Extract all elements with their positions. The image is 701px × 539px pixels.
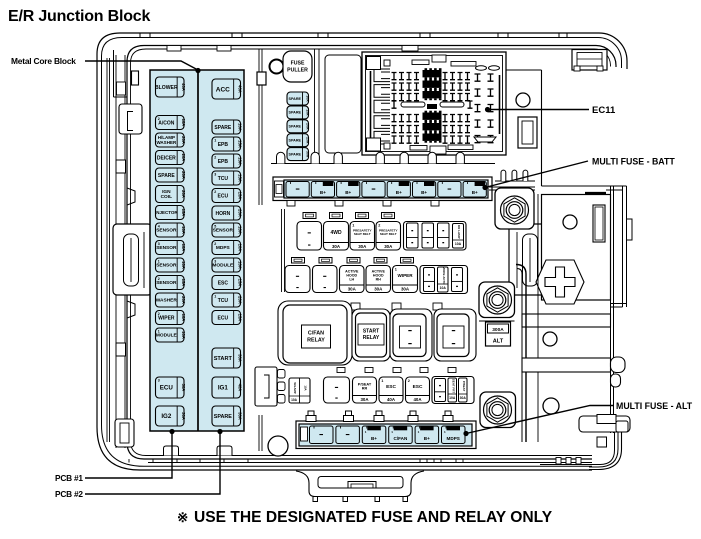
svg-text:1: 1 bbox=[352, 224, 354, 228]
svg-text:30A: 30A bbox=[358, 244, 367, 249]
svg-text:4: 4 bbox=[158, 224, 160, 228]
svg-text:1: 1 bbox=[158, 329, 160, 333]
svg-text:40A: 40A bbox=[181, 83, 186, 91]
svg-text:20A: 20A bbox=[306, 123, 310, 130]
svg-text:Metal Core Block: Metal Core Block bbox=[11, 56, 76, 66]
svg-text:SPARE: SPARE bbox=[289, 125, 302, 129]
svg-text:15A: 15A bbox=[306, 109, 310, 116]
svg-text:1: 1 bbox=[214, 294, 216, 298]
svg-text:20A: 20A bbox=[181, 136, 186, 144]
svg-text:BLOWER: BLOWER bbox=[155, 85, 178, 91]
svg-text:RH: RH bbox=[376, 277, 382, 281]
svg-text:B+: B+ bbox=[424, 436, 430, 441]
svg-text:50A: 50A bbox=[477, 182, 484, 186]
svg-text:2: 2 bbox=[214, 155, 216, 159]
svg-text:5: 5 bbox=[214, 224, 216, 228]
svg-text:MDPS: MDPS bbox=[216, 245, 231, 251]
svg-text:3: 3 bbox=[214, 259, 216, 263]
svg-text:3: 3 bbox=[214, 172, 216, 176]
svg-text:10A: 10A bbox=[238, 123, 243, 131]
svg-text:WASHER: WASHER bbox=[156, 140, 177, 145]
svg-text:4WD: 4WD bbox=[330, 230, 342, 236]
svg-text:SPARE: SPARE bbox=[289, 111, 302, 115]
svg-text:RELAY: RELAY bbox=[307, 338, 325, 344]
svg-text:START: START bbox=[363, 329, 379, 335]
svg-text:B+: B+ bbox=[421, 190, 427, 195]
svg-text:10A: 10A bbox=[238, 244, 243, 252]
svg-text:1: 1 bbox=[158, 259, 160, 263]
svg-text:2: 2 bbox=[408, 379, 410, 383]
svg-text:WIPER: WIPER bbox=[397, 273, 413, 278]
svg-text:SENSOR: SENSOR bbox=[156, 280, 177, 286]
svg-text:15A: 15A bbox=[181, 279, 186, 287]
svg-text:1: 1 bbox=[214, 138, 216, 142]
svg-text:10A: 10A bbox=[238, 226, 243, 234]
svg-text:HORN: HORN bbox=[215, 211, 230, 217]
svg-text:ACC: ACC bbox=[216, 86, 230, 93]
svg-text:P/SEAT: P/SEAT bbox=[462, 381, 466, 392]
svg-text:COIL: COIL bbox=[161, 194, 173, 200]
svg-text:60A: 60A bbox=[350, 182, 357, 186]
svg-text:20A: 20A bbox=[238, 209, 243, 217]
svg-text:SPARE: SPARE bbox=[214, 125, 232, 131]
svg-text:MULTI FUSE - BATT: MULTI FUSE - BATT bbox=[592, 157, 675, 167]
svg-text:MODE ACTR: MODE ACTR bbox=[442, 266, 446, 285]
svg-text:125A: 125A bbox=[450, 427, 458, 431]
svg-text:ESC: ESC bbox=[386, 384, 396, 390]
svg-text:30A: 30A bbox=[401, 287, 410, 292]
svg-text:1: 1 bbox=[381, 379, 383, 383]
svg-text:40A: 40A bbox=[387, 397, 396, 402]
svg-text:10A: 10A bbox=[181, 119, 186, 127]
svg-text:IG1: IG1 bbox=[218, 385, 229, 392]
svg-text:SENSOR: SENSOR bbox=[213, 228, 234, 234]
svg-text:30A: 30A bbox=[460, 396, 467, 400]
svg-text:2: 2 bbox=[378, 224, 380, 228]
svg-text:DEICER: DEICER bbox=[157, 155, 176, 161]
svg-text:USE THE DESIGNATED FUSE AND RE: USE THE DESIGNATED FUSE AND RELAY ONLY bbox=[194, 509, 553, 526]
svg-text:SPARE: SPARE bbox=[289, 97, 302, 101]
svg-text:START: START bbox=[214, 356, 233, 362]
svg-text:10A: 10A bbox=[181, 331, 186, 339]
svg-text:60A: 60A bbox=[325, 182, 332, 186]
svg-text:2: 2 bbox=[158, 117, 160, 121]
svg-text:15A: 15A bbox=[181, 209, 186, 217]
svg-text:C/FAN: C/FAN bbox=[308, 331, 324, 337]
svg-text:C/FAN: C/FAN bbox=[394, 436, 408, 441]
svg-text:40A: 40A bbox=[413, 397, 422, 402]
svg-text:A/CON: A/CON bbox=[158, 120, 175, 126]
svg-text:30A: 30A bbox=[181, 412, 186, 420]
svg-text:SENSOR: SENSOR bbox=[156, 228, 177, 234]
svg-text:2: 2 bbox=[158, 312, 160, 316]
svg-text:B+: B+ bbox=[396, 190, 402, 195]
svg-text:15A: 15A bbox=[238, 157, 243, 165]
svg-text:15A: 15A bbox=[238, 174, 243, 182]
svg-text:10A: 10A bbox=[306, 95, 310, 102]
svg-text:RR LAMP: RR LAMP bbox=[457, 225, 461, 239]
svg-text:10A: 10A bbox=[238, 261, 243, 269]
svg-text:20A: 20A bbox=[181, 154, 186, 162]
svg-text:10A: 10A bbox=[181, 244, 186, 252]
svg-text:RR: RR bbox=[362, 387, 368, 391]
svg-text:1: 1 bbox=[395, 268, 397, 272]
svg-text:※: ※ bbox=[177, 510, 188, 525]
svg-text:15A: 15A bbox=[238, 140, 243, 148]
svg-text:SPARE: SPARE bbox=[158, 173, 176, 179]
svg-text:SPARE: SPARE bbox=[289, 139, 302, 143]
svg-text:30A: 30A bbox=[360, 397, 369, 402]
svg-text:ECU: ECU bbox=[160, 385, 174, 392]
svg-text:10A: 10A bbox=[181, 226, 186, 234]
svg-text:B+: B+ bbox=[371, 436, 377, 441]
svg-text:MDPS: MDPS bbox=[447, 436, 460, 441]
svg-text:RELAY: RELAY bbox=[363, 335, 380, 341]
svg-text:SEAT FRT: SEAT FRT bbox=[451, 379, 455, 394]
svg-text:60A: 60A bbox=[426, 182, 433, 186]
svg-text:ALT: ALT bbox=[493, 339, 504, 345]
svg-text:W/LAMP: W/LAMP bbox=[293, 382, 297, 393]
svg-text:PCB #1: PCB #1 bbox=[55, 473, 83, 483]
svg-text:30A: 30A bbox=[238, 412, 243, 420]
svg-text:SEAT BELT: SEAT BELT bbox=[380, 232, 397, 236]
svg-text:10A: 10A bbox=[449, 396, 456, 400]
svg-text:FUSE: FUSE bbox=[291, 61, 305, 67]
svg-text:20A: 20A bbox=[181, 190, 186, 198]
svg-text:30A: 30A bbox=[306, 151, 310, 158]
svg-text:SENSOR: SENSOR bbox=[156, 263, 177, 269]
svg-text:WASHER: WASHER bbox=[156, 298, 178, 304]
svg-text:ECU: ECU bbox=[218, 315, 229, 321]
svg-text:20A: 20A bbox=[181, 171, 186, 179]
svg-text:10A: 10A bbox=[181, 314, 186, 322]
svg-text:2: 2 bbox=[214, 242, 216, 246]
svg-text:TCU: TCU bbox=[218, 176, 229, 182]
svg-text:30A: 30A bbox=[238, 354, 243, 362]
svg-text:SENSOR: SENSOR bbox=[156, 245, 177, 251]
svg-text:B+: B+ bbox=[472, 190, 478, 195]
svg-text:MULTI FUSE - ALT: MULTI FUSE - ALT bbox=[616, 401, 693, 411]
svg-text:15A: 15A bbox=[238, 314, 243, 322]
svg-text:40A: 40A bbox=[238, 85, 243, 93]
svg-text:3: 3 bbox=[158, 242, 160, 246]
svg-text:SPARE: SPARE bbox=[289, 152, 302, 156]
svg-text:30A: 30A bbox=[181, 384, 186, 392]
svg-text:WIPER: WIPER bbox=[158, 315, 175, 321]
svg-text:E/R Junction Block: E/R Junction Block bbox=[8, 8, 150, 25]
svg-text:30A: 30A bbox=[332, 244, 341, 249]
svg-text:PULLER: PULLER bbox=[287, 68, 308, 74]
svg-text:SPARE: SPARE bbox=[214, 414, 233, 420]
svg-text:2: 2 bbox=[158, 277, 160, 281]
svg-text:20A: 20A bbox=[181, 296, 186, 304]
svg-text:15A: 15A bbox=[238, 192, 243, 200]
svg-text:30A: 30A bbox=[374, 287, 383, 292]
svg-text:40A: 40A bbox=[238, 384, 243, 392]
svg-text:EPB: EPB bbox=[218, 159, 229, 165]
svg-text:10A: 10A bbox=[181, 261, 186, 269]
svg-text:ESC: ESC bbox=[413, 384, 423, 390]
svg-text:30A: 30A bbox=[384, 244, 393, 249]
svg-text:10A: 10A bbox=[291, 398, 298, 402]
svg-text:ECU: ECU bbox=[218, 193, 229, 199]
svg-text:10A: 10A bbox=[455, 242, 462, 246]
svg-text:INJECTOR: INJECTOR bbox=[155, 210, 178, 215]
svg-text:25A: 25A bbox=[306, 137, 310, 144]
svg-text:TCU: TCU bbox=[218, 298, 229, 304]
svg-text:20A: 20A bbox=[238, 296, 243, 304]
svg-text:60A: 60A bbox=[401, 182, 408, 186]
svg-text:MODULE: MODULE bbox=[156, 333, 178, 339]
svg-text:30A: 30A bbox=[348, 287, 357, 292]
svg-text:10A: 10A bbox=[440, 286, 447, 290]
svg-text:60A: 60A bbox=[424, 427, 430, 431]
svg-text:PCB #2: PCB #2 bbox=[55, 489, 83, 499]
svg-text:75A: 75A bbox=[398, 427, 404, 431]
svg-text:EPB: EPB bbox=[218, 142, 229, 148]
svg-text:SEAT BELT: SEAT BELT bbox=[354, 232, 371, 236]
svg-text:300A: 300A bbox=[492, 327, 504, 333]
svg-text:EC11: EC11 bbox=[592, 105, 616, 116]
svg-text:IG2: IG2 bbox=[161, 413, 172, 420]
svg-text:2: 2 bbox=[214, 190, 216, 194]
svg-text:MODULE: MODULE bbox=[212, 263, 234, 269]
svg-text:50A: 50A bbox=[371, 427, 377, 431]
svg-text:15A: 15A bbox=[304, 385, 308, 390]
svg-text:3: 3 bbox=[158, 378, 160, 382]
svg-text:B+: B+ bbox=[320, 190, 326, 195]
svg-text:15A: 15A bbox=[238, 279, 243, 287]
svg-text:ESC: ESC bbox=[218, 280, 229, 286]
svg-text:B+: B+ bbox=[345, 190, 351, 195]
svg-text:LH: LH bbox=[349, 277, 354, 281]
